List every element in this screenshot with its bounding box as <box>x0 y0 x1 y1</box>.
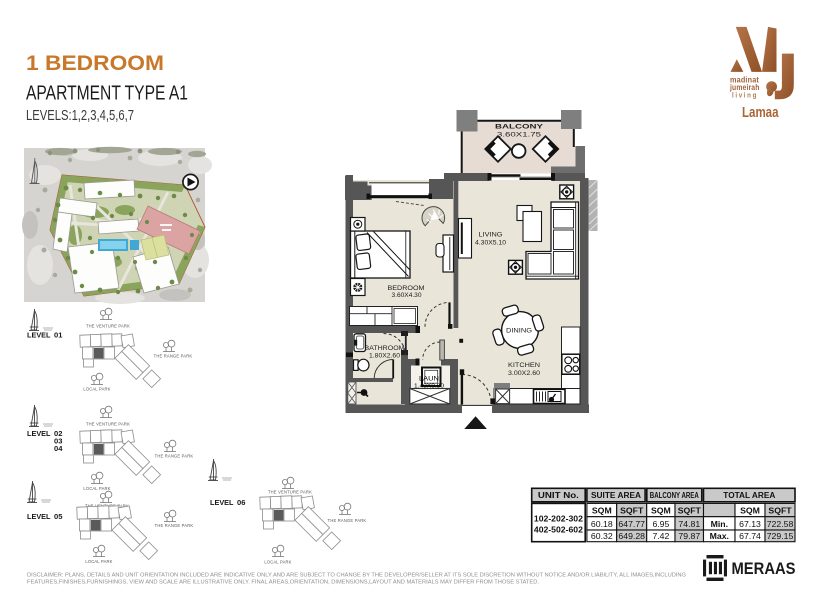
svg-text:SUITE AREA: SUITE AREA <box>591 490 642 500</box>
svg-text:THE VENTURE PARK: THE VENTURE PARK <box>268 490 312 495</box>
svg-text:LEVELS:1,2,3,4,5,6,7: LEVELS:1,2,3,4,5,6,7 <box>26 108 134 124</box>
svg-text:TOTAL AREA: TOTAL AREA <box>723 490 776 500</box>
svg-text:LOCAL PARK: LOCAL PARK <box>83 387 110 392</box>
svg-text:LEVEL: LEVEL <box>27 429 51 438</box>
svg-text:SQM: SQM <box>651 506 671 516</box>
svg-text:74.81: 74.81 <box>678 519 700 529</box>
svg-text:3.00X2.60: 3.00X2.60 <box>508 370 541 377</box>
svg-text:BALCONY AREA: BALCONY AREA <box>650 490 700 500</box>
svg-text:living: living <box>732 91 758 100</box>
svg-text:04: 04 <box>54 444 63 453</box>
svg-text:FEATURES,FINISHES,FURNISHINGS,: FEATURES,FINISHES,FURNISHINGS, VIEW AND … <box>27 580 540 586</box>
svg-text:LIVING: LIVING <box>479 232 503 239</box>
svg-text:01: 01 <box>54 331 63 340</box>
svg-text:LEVEL: LEVEL <box>27 512 51 521</box>
svg-text:6.95: 6.95 <box>652 519 669 529</box>
svg-text:SQM: SQM <box>740 506 760 516</box>
svg-text:LOCAL PARK: LOCAL PARK <box>264 560 291 565</box>
svg-text:DISCLAIMER: PLANS, DETAILS AND: DISCLAIMER: PLANS, DETAILS AND UNIT ORIE… <box>27 573 686 579</box>
svg-text:05: 05 <box>54 512 63 521</box>
svg-text:LEVEL: LEVEL <box>27 331 51 340</box>
svg-text:SQFT: SQFT <box>768 506 792 516</box>
svg-text:3.60X1.75: 3.60X1.75 <box>497 132 542 138</box>
svg-text:MERAAS: MERAAS <box>732 559 796 578</box>
svg-text:DINING: DINING <box>506 327 532 334</box>
svg-text:67.74: 67.74 <box>739 531 761 541</box>
svg-text:THE RANGE PARK: THE RANGE PARK <box>328 518 367 523</box>
svg-text:Max.: Max. <box>710 531 729 541</box>
svg-text:79.87: 79.87 <box>678 531 700 541</box>
svg-text:KITCHEN: KITCHEN <box>508 362 540 369</box>
svg-text:BEDROOM: BEDROOM <box>388 285 425 292</box>
svg-text:06: 06 <box>237 498 245 507</box>
svg-text:THE RANGE PARK: THE RANGE PARK <box>154 354 193 359</box>
svg-text:APARTMENT TYPE A1: APARTMENT TYPE A1 <box>26 83 188 105</box>
svg-text:649.28: 649.28 <box>618 531 645 541</box>
svg-text:7.42: 7.42 <box>652 531 669 541</box>
svg-text:102-202-302: 102-202-302 <box>534 514 583 524</box>
svg-text:LEVEL: LEVEL <box>210 498 234 507</box>
svg-text:722.58: 722.58 <box>767 519 794 529</box>
svg-text:60.32: 60.32 <box>591 531 613 541</box>
svg-text:402-502-602: 402-502-602 <box>534 525 583 535</box>
svg-text:Min.: Min. <box>711 519 728 529</box>
svg-text:SQM: SQM <box>592 506 612 516</box>
svg-text:LAUN.: LAUN. <box>419 376 441 383</box>
svg-text:BALCONY: BALCONY <box>495 124 544 131</box>
svg-text:3.60X4.30: 3.60X4.30 <box>392 292 423 299</box>
svg-text:729.15: 729.15 <box>767 531 794 541</box>
svg-text:LOCAL PARK: LOCAL PARK <box>83 486 110 491</box>
svg-text:SQFT: SQFT <box>620 506 644 516</box>
svg-text:THE RANGE PARK: THE RANGE PARK <box>155 454 194 459</box>
svg-text:67.13: 67.13 <box>739 519 761 529</box>
svg-text:4.30X5.10: 4.30X5.10 <box>475 240 507 247</box>
svg-text:60.18: 60.18 <box>591 519 613 529</box>
svg-text:THE VENTURE PARK: THE VENTURE PARK <box>86 324 130 329</box>
svg-text:UNIT No.: UNIT No. <box>538 490 579 500</box>
svg-text:LOCAL PARK: LOCAL PARK <box>85 559 112 564</box>
svg-text:647.77: 647.77 <box>618 519 645 529</box>
svg-text:Lamaa: Lamaa <box>742 105 779 121</box>
svg-text:BATHROOM: BATHROOM <box>365 345 405 352</box>
svg-text:SQFT: SQFT <box>678 506 702 516</box>
svg-text:1 BEDROOM: 1 BEDROOM <box>26 51 164 75</box>
svg-text:1.40X0.80: 1.40X0.80 <box>414 383 444 389</box>
svg-text:THE RANGE PARK: THE RANGE PARK <box>155 523 194 528</box>
svg-text:THE VENTURE PARK: THE VENTURE PARK <box>86 422 130 427</box>
svg-text:1.80X2.60: 1.80X2.60 <box>369 353 401 360</box>
